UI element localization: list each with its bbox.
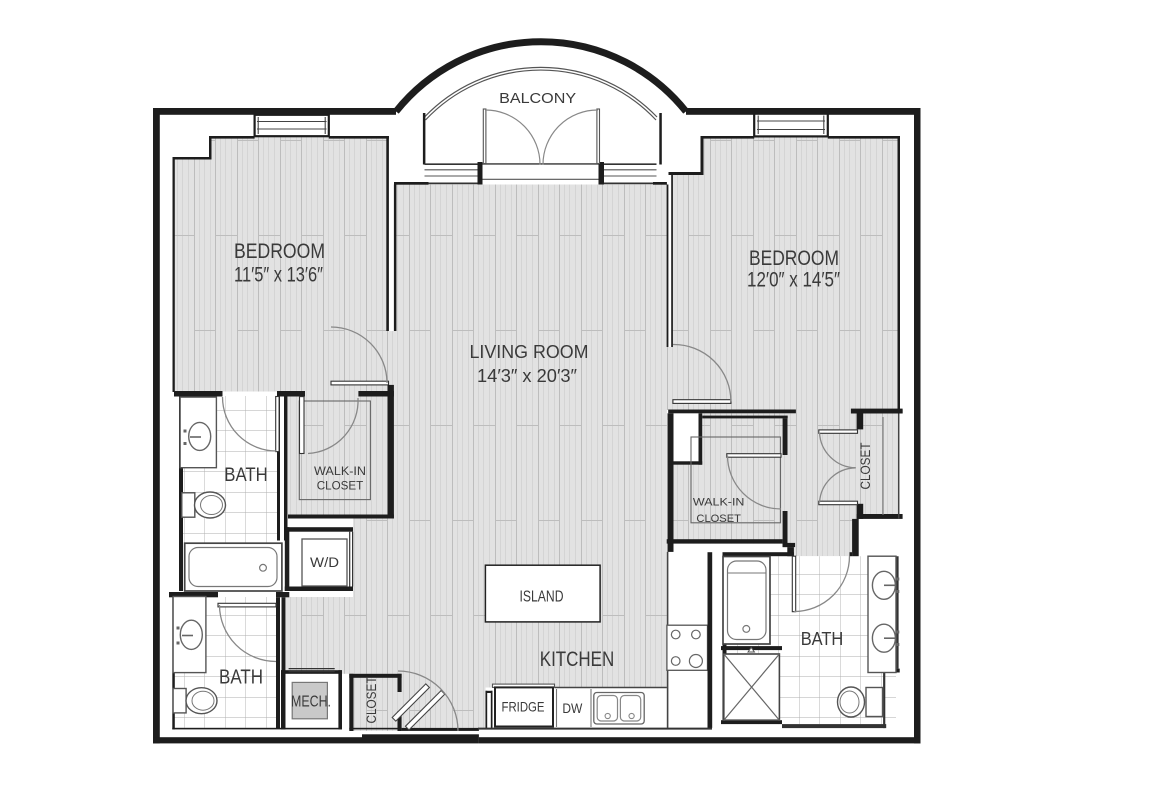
svg-text:BEDROOM: BEDROOM xyxy=(749,247,839,270)
svg-text:CLOSET: CLOSET xyxy=(363,676,379,723)
svg-text:DW: DW xyxy=(562,700,583,716)
svg-text:FRIDGE: FRIDGE xyxy=(502,699,545,715)
svg-text:WALK-IN: WALK-IN xyxy=(314,464,366,478)
svg-text:CLOSET: CLOSET xyxy=(858,443,873,490)
svg-text:LIVING ROOM: LIVING ROOM xyxy=(470,342,589,362)
svg-text:CLOSET: CLOSET xyxy=(317,479,364,493)
svg-text:CLOSET: CLOSET xyxy=(696,513,741,525)
svg-text:WALK-IN: WALK-IN xyxy=(693,496,745,508)
svg-text:BALCONY: BALCONY xyxy=(499,91,576,107)
svg-text:BATH: BATH xyxy=(224,464,268,486)
svg-text:BATH: BATH xyxy=(801,628,844,649)
svg-text:11′5″ x 13′6″: 11′5″ x 13′6″ xyxy=(234,264,323,287)
svg-text:14′3″ x 20′3″: 14′3″ x 20′3″ xyxy=(477,366,578,386)
svg-text:MECH.: MECH. xyxy=(291,694,331,711)
svg-text:BATH: BATH xyxy=(219,667,263,689)
svg-text:12′0″ x 14′5″: 12′0″ x 14′5″ xyxy=(747,269,840,292)
svg-text:KITCHEN: KITCHEN xyxy=(540,648,615,671)
svg-text:W/D: W/D xyxy=(310,554,339,570)
svg-text:BEDROOM: BEDROOM xyxy=(234,240,325,263)
svg-text:ISLAND: ISLAND xyxy=(520,589,564,606)
